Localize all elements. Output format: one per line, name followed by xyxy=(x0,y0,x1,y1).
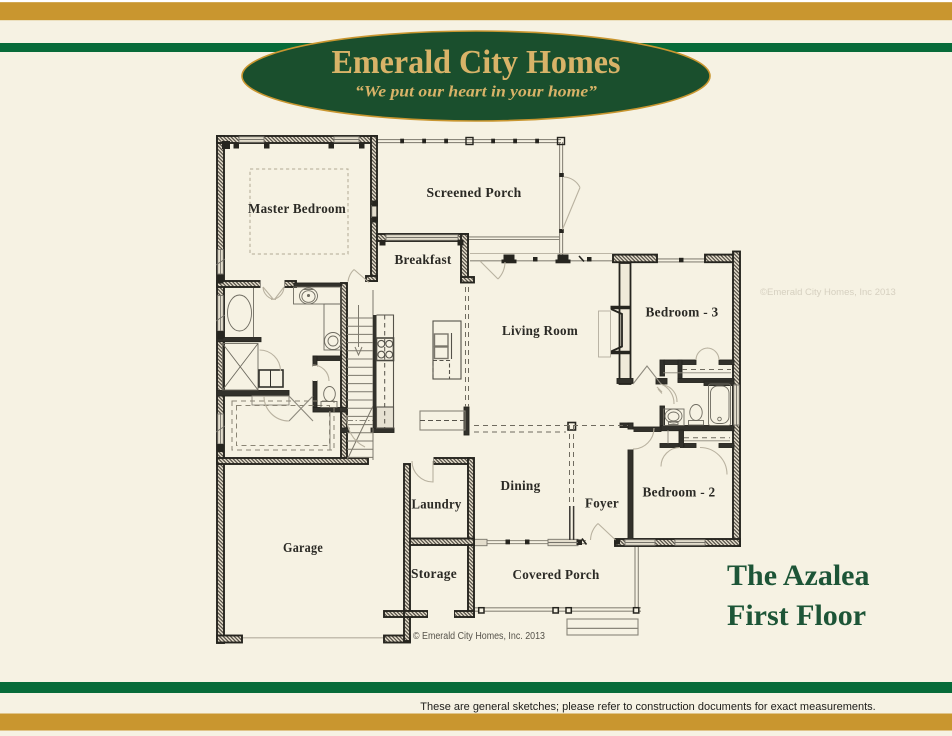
svg-text:Screened Porch: Screened Porch xyxy=(427,186,522,201)
svg-text:Emerald City Homes: Emerald City Homes xyxy=(332,44,621,81)
svg-text:Covered Porch: Covered Porch xyxy=(513,568,600,583)
svg-text:Bedroom - 3: Bedroom - 3 xyxy=(646,306,719,321)
svg-text:These are general sketches; pl: These are general sketches; please refer… xyxy=(420,701,876,713)
svg-text:Living Room: Living Room xyxy=(502,324,578,339)
svg-text:© Emerald City Homes, Inc. 201: © Emerald City Homes, Inc. 2013 xyxy=(413,631,545,642)
svg-text:“We put our heart in your home: “We put our heart in your home” xyxy=(355,84,597,101)
svg-text:Dining: Dining xyxy=(501,479,541,494)
svg-text:Laundry: Laundry xyxy=(412,498,462,513)
svg-text:Master Bedroom: Master Bedroom xyxy=(248,202,346,217)
svg-text:Foyer: Foyer xyxy=(585,497,619,512)
svg-text:Bedroom - 2: Bedroom - 2 xyxy=(643,486,716,501)
svg-text:©Emerald City Homes, Inc 2013: ©Emerald City Homes, Inc 2013 xyxy=(760,287,896,298)
svg-text:Breakfast: Breakfast xyxy=(395,253,452,268)
svg-text:First Floor: First Floor xyxy=(727,599,866,632)
svg-text:The Azalea: The Azalea xyxy=(727,559,870,592)
svg-text:Storage: Storage xyxy=(411,567,457,582)
svg-text:Garage: Garage xyxy=(283,541,323,556)
